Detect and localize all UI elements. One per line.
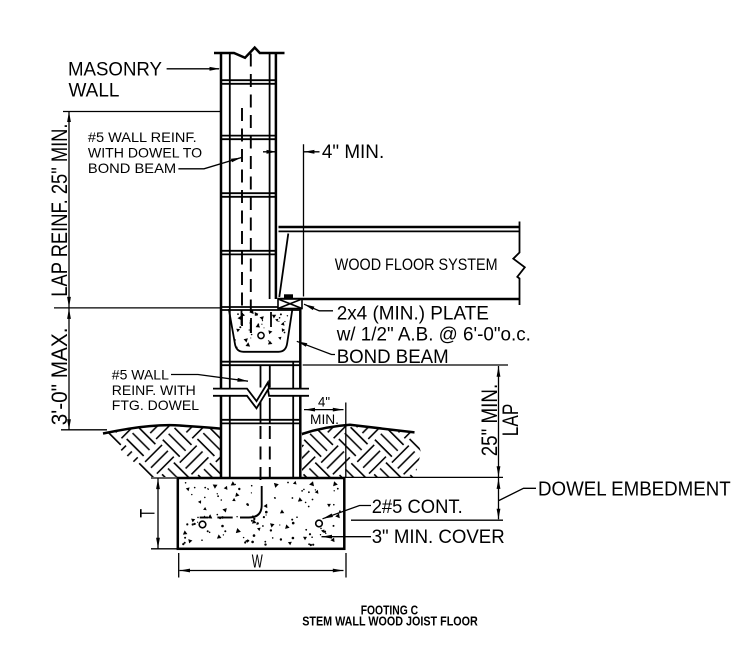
svg-text:WALL: WALL bbox=[69, 81, 120, 102]
svg-text:T: T bbox=[137, 509, 160, 518]
svg-text:MIN.: MIN. bbox=[310, 411, 339, 427]
svg-text:2#5 CONT.: 2#5 CONT. bbox=[372, 496, 463, 518]
svg-text:4": 4" bbox=[318, 393, 330, 409]
svg-text:#5 WALL: #5 WALL bbox=[112, 367, 169, 383]
svg-text:W: W bbox=[252, 551, 263, 571]
svg-text:w/ 1/2" A.B. @ 6'-0"o.c.: w/ 1/2" A.B. @ 6'-0"o.c. bbox=[336, 324, 531, 346]
svg-text:3" MIN. COVER: 3" MIN. COVER bbox=[372, 526, 505, 548]
svg-text:2x4 (MIN.) PLATE: 2x4 (MIN.) PLATE bbox=[337, 303, 489, 325]
svg-text:WOOD FLOOR SYSTEM: WOOD FLOOR SYSTEM bbox=[335, 255, 498, 274]
svg-text:STEM WALL WOOD JOIST FLOOR: STEM WALL WOOD JOIST FLOOR bbox=[302, 613, 478, 628]
svg-text:FTG. DOWEL: FTG. DOWEL bbox=[112, 397, 199, 413]
svg-text:BOND BEAM: BOND BEAM bbox=[337, 346, 449, 368]
svg-text:4" MIN.: 4" MIN. bbox=[322, 142, 384, 163]
svg-text:#5 WALL REINF.: #5 WALL REINF. bbox=[88, 129, 197, 145]
svg-text:MASONRY: MASONRY bbox=[68, 59, 162, 80]
svg-text:BOND BEAM: BOND BEAM bbox=[88, 160, 176, 176]
svg-text:WITH DOWEL TO: WITH DOWEL TO bbox=[88, 145, 202, 161]
svg-text:3'-0" MAX.: 3'-0" MAX. bbox=[47, 328, 72, 426]
svg-text:REINF. WITH: REINF. WITH bbox=[112, 382, 196, 398]
svg-text:LAP REINF. 25" MIN.: LAP REINF. 25" MIN. bbox=[47, 124, 72, 297]
svg-text:DOWEL EMBEDMENT: DOWEL EMBEDMENT bbox=[538, 479, 731, 501]
svg-text:LAP: LAP bbox=[498, 404, 523, 437]
